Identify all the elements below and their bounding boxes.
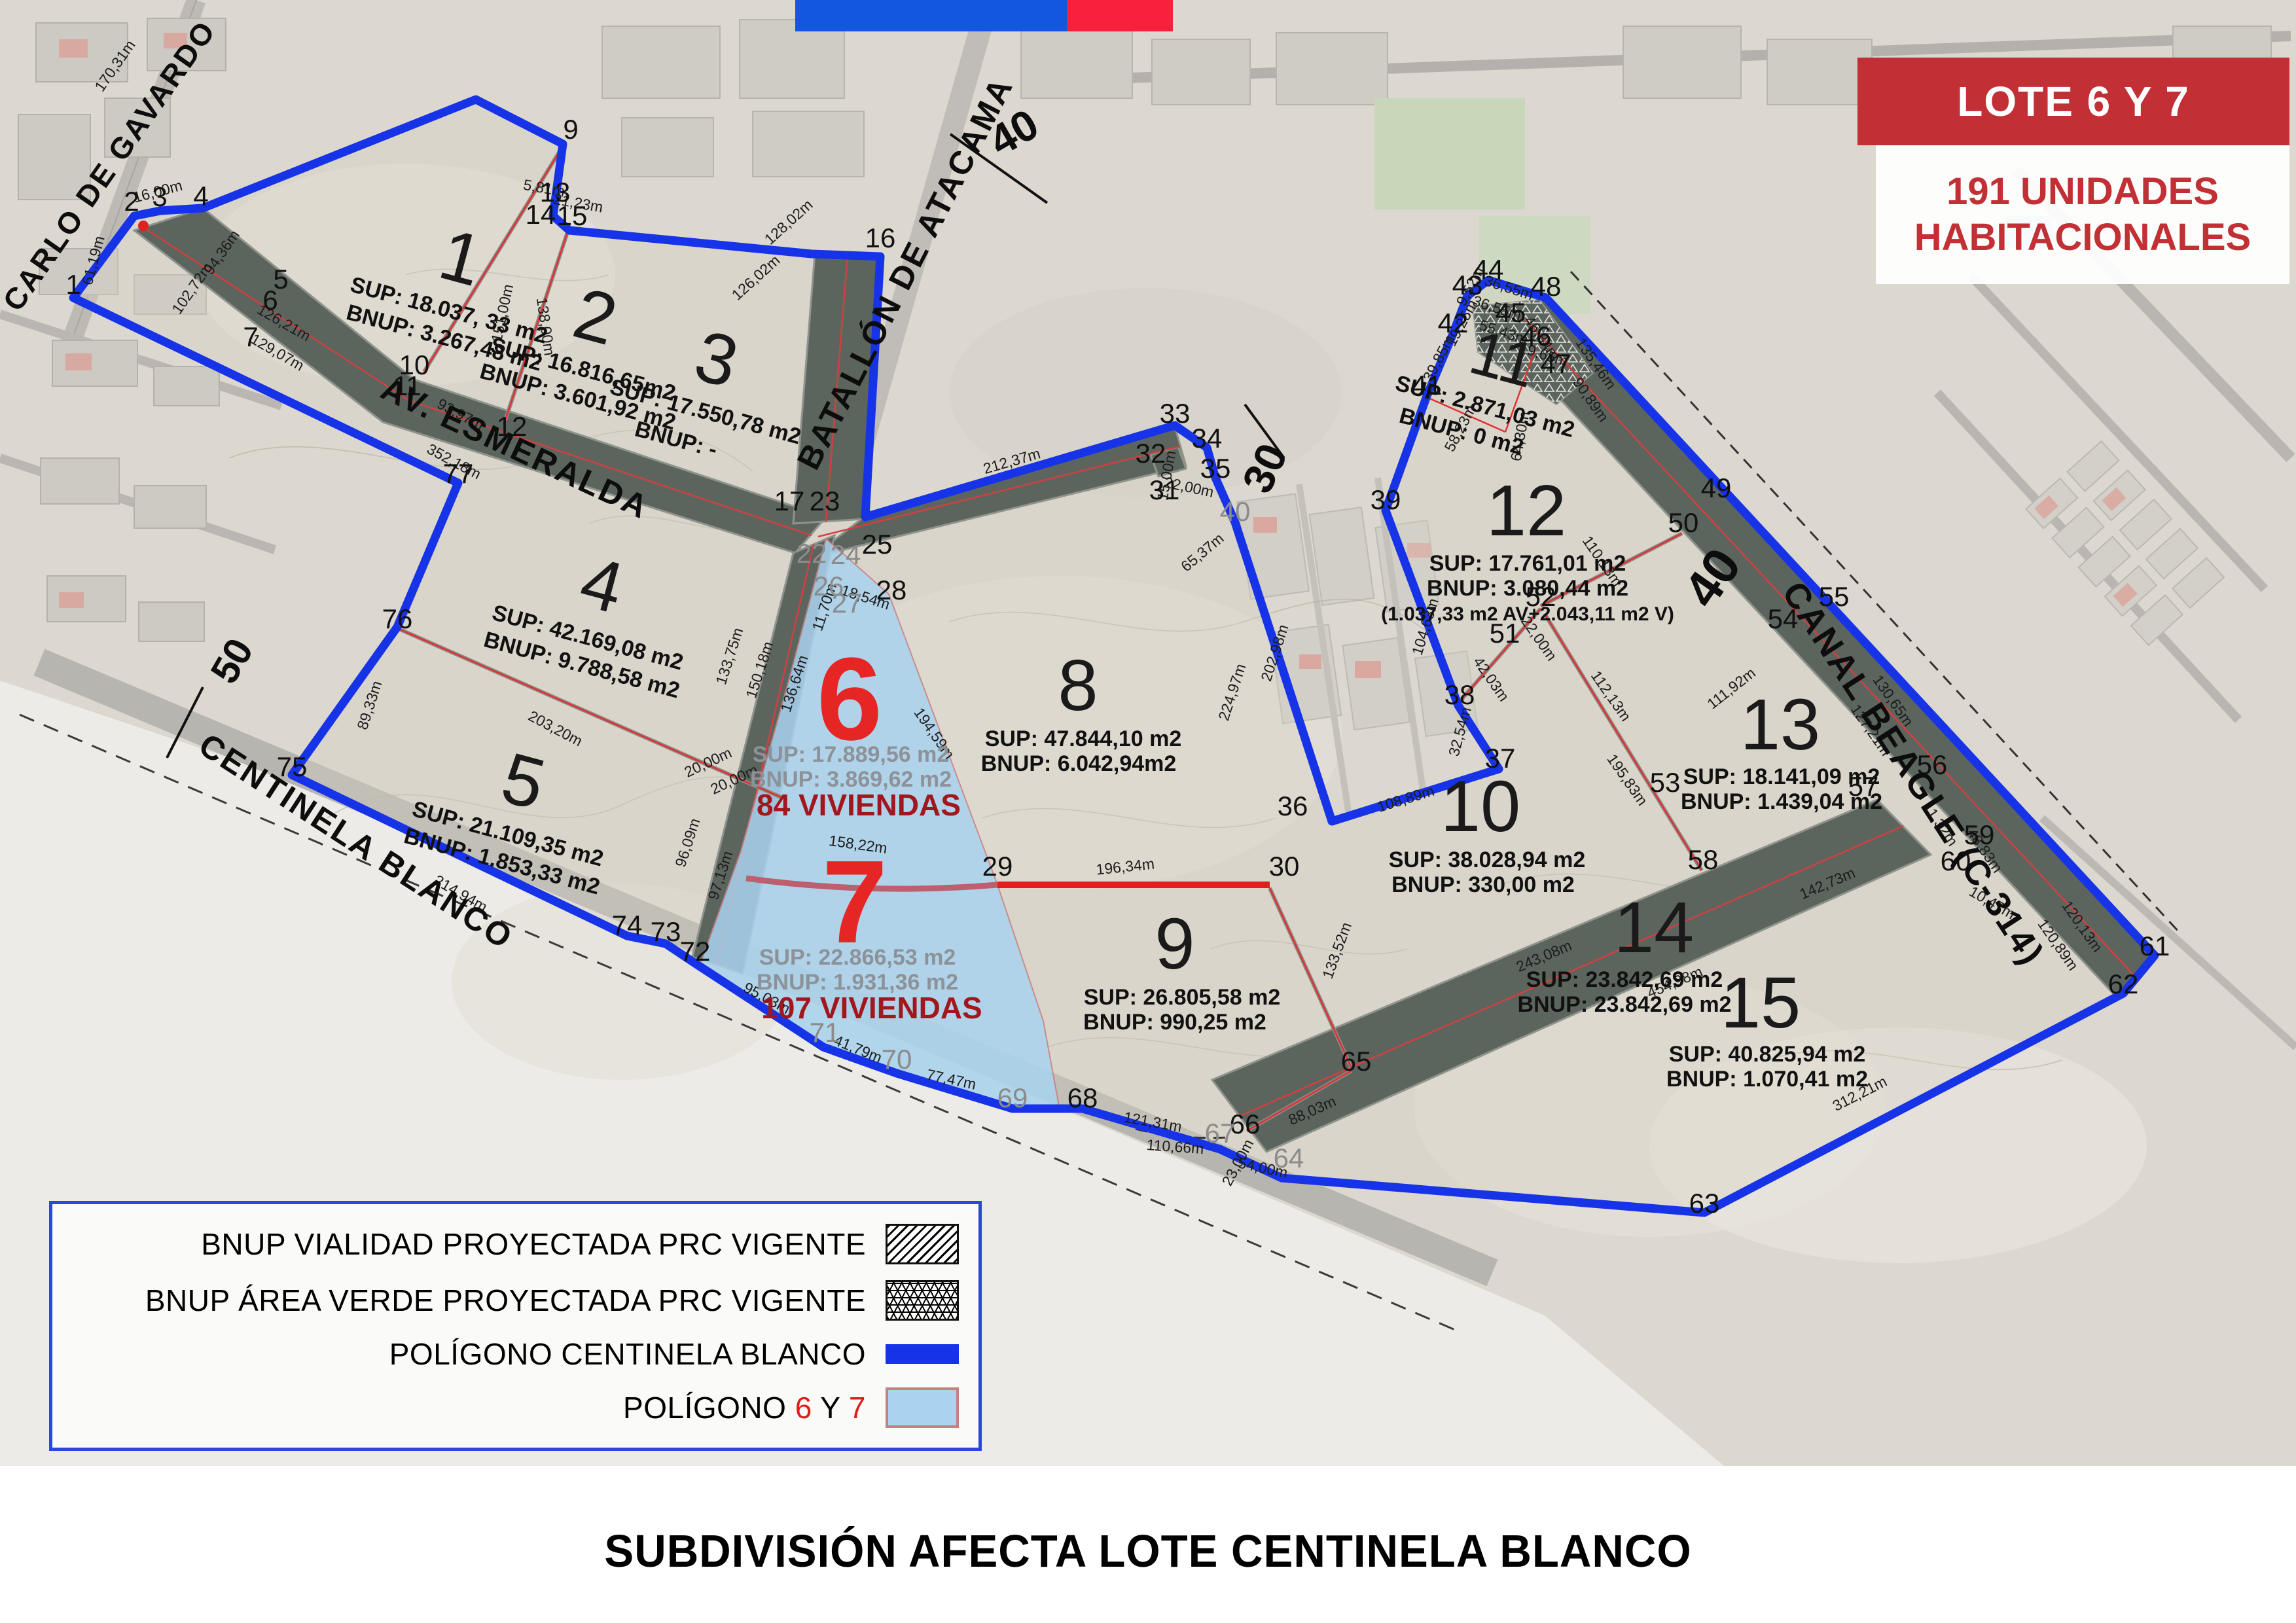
vertex-number: 65 bbox=[1341, 1046, 1372, 1077]
lot-number: 12 bbox=[1486, 471, 1566, 551]
legend-row-vialidad: BNUP VIALIDAD PROYECTADA PRC VIGENTE bbox=[59, 1224, 959, 1264]
vertex-number: 22 bbox=[797, 538, 827, 569]
legend-label-area-verde: BNUP ÁREA VERDE PROYECTADA PRC VIGENTE bbox=[145, 1283, 866, 1318]
lot-viviendas-label: 84 VIVIENDAS bbox=[757, 788, 961, 822]
info-line2: HABITACIONALES bbox=[1914, 215, 2251, 260]
vertex-number: 48 bbox=[1531, 271, 1562, 302]
vertex-number: 74 bbox=[612, 910, 643, 940]
legend-label-part: POLÍGONO bbox=[623, 1391, 795, 1425]
vertex-number: 9 bbox=[563, 114, 578, 145]
lot-area-text: BNUP: 990,25 m2 bbox=[1083, 1010, 1266, 1035]
vertex-number: 64 bbox=[1274, 1143, 1304, 1173]
vertex-number: 23 bbox=[810, 486, 840, 516]
vertex-number: 47 bbox=[1541, 348, 1571, 379]
lot-viviendas-label: 107 VIVIENDAS bbox=[761, 991, 982, 1025]
vertex-number: 73 bbox=[651, 916, 681, 947]
vertex-number: 36 bbox=[1278, 791, 1308, 821]
lot-area-text: BNUP: 3.080,44 m2 bbox=[1427, 576, 1628, 601]
vertex-number: 24 bbox=[831, 539, 861, 570]
lot-number: 9 bbox=[1155, 904, 1194, 984]
vertex-number: 3 bbox=[152, 181, 167, 212]
legend-row-poligono-67: POLÍGONO 6 Y 7 bbox=[59, 1387, 959, 1428]
lot-area-text: SUP: 47.844,10 m2 bbox=[985, 726, 1182, 751]
flag-bar-red bbox=[1067, 0, 1173, 31]
red-vertex-dot bbox=[138, 221, 149, 231]
lot-number: 10 bbox=[1441, 766, 1520, 847]
vertex-number: 61 bbox=[2140, 931, 2170, 961]
lot-number: 13 bbox=[1740, 685, 1820, 765]
legend-swatch-area-verde-hatch bbox=[886, 1280, 959, 1321]
legend-row-poligono-cb: POLÍGONO CENTINELA BLANCO bbox=[59, 1336, 959, 1372]
vertex-number: 27 bbox=[832, 588, 863, 618]
lot-area-text: BNUP: 330,00 m2 bbox=[1391, 872, 1575, 897]
lot-area-text: BNUP: 23.842,69 m2 bbox=[1518, 992, 1732, 1017]
vertex-number: 32 bbox=[1136, 438, 1166, 469]
legend-label-poligono-cb: POLÍGONO CENTINELA BLANCO bbox=[389, 1336, 866, 1372]
lot-area-text: SUP: 38.028,94 m2 bbox=[1389, 847, 1586, 872]
legend-label-part: Y bbox=[812, 1391, 849, 1425]
vertex-number: 29 bbox=[982, 851, 1013, 882]
lot-area-text: SUP: 26.805,58 m2 bbox=[1084, 985, 1281, 1010]
info-subtitle-box: 191 UNIDADES HABITACIONALES bbox=[1876, 145, 2289, 284]
vertex-number: 68 bbox=[1067, 1082, 1098, 1113]
vertex-number: 7 bbox=[243, 321, 258, 352]
page-title: SUBDIVISIÓN AFECTA LOTE CENTINELA BLANCO bbox=[46, 1525, 2250, 1577]
lot-area-text: BNUP: 6.042,94m2 bbox=[981, 751, 1177, 776]
vertex-number: 16 bbox=[865, 223, 896, 253]
info-banner: LOTE 6 Y 7 bbox=[1857, 58, 2289, 145]
vertex-number: 62 bbox=[2108, 969, 2139, 999]
lot-number: 15 bbox=[1721, 963, 1801, 1043]
vertex-number: 58 bbox=[1688, 844, 1719, 875]
vertex-number: 25 bbox=[862, 529, 893, 560]
vertex-number: 63 bbox=[1689, 1188, 1720, 1219]
flag-bar-blue bbox=[795, 0, 1067, 31]
vertex-number: 15 bbox=[557, 200, 588, 231]
lot-area-text: SUP: 18.141,09 m2 bbox=[1683, 764, 1880, 789]
lot-number: 8 bbox=[1058, 645, 1098, 726]
vertex-number: 1 bbox=[65, 269, 81, 300]
lot-area-text: SUP: 23.842,69 m2 bbox=[1526, 967, 1723, 992]
lot-area-text: (1.037,33 m2 AV+2.043,11 m2 V) bbox=[1381, 603, 1674, 625]
legend-label-part: 6 bbox=[795, 1391, 812, 1425]
vertex-number: 38 bbox=[1444, 679, 1475, 710]
legend-swatch-lightblue-fill bbox=[886, 1387, 959, 1428]
vertex-number: 33 bbox=[1160, 398, 1191, 429]
info-title: LOTE 6 Y 7 bbox=[1957, 77, 2190, 126]
vertex-number: 14 bbox=[526, 199, 556, 230]
legend-label-part: 7 bbox=[849, 1391, 866, 1425]
vertex-number: 6 bbox=[262, 285, 278, 315]
legend-swatch-blue-line bbox=[886, 1344, 959, 1364]
vertex-number: 17 bbox=[774, 486, 805, 516]
legend-box: BNUP VIALIDAD PROYECTADA PRC VIGENTE BNU… bbox=[49, 1201, 982, 1451]
vertex-number: 30 bbox=[1269, 851, 1300, 882]
vertex-number: 50 bbox=[1668, 507, 1699, 538]
vertex-number: 4 bbox=[193, 181, 208, 211]
vertex-number: 2 bbox=[124, 186, 139, 217]
vertex-number: 35 bbox=[1200, 453, 1231, 484]
vertex-number: 44 bbox=[1473, 254, 1504, 285]
vertex-number: 67 bbox=[1205, 1118, 1236, 1149]
lot-area-text: SUP: 22.866,53 m2 bbox=[759, 945, 956, 970]
vertex-number: 70 bbox=[882, 1044, 912, 1075]
vertex-number: 72 bbox=[680, 936, 711, 967]
lot-area-text: SUP: 40.825,94 m2 bbox=[1669, 1042, 1866, 1067]
vertex-number: 28 bbox=[876, 575, 907, 605]
lot-area-text: BNUP: 1.439,04 m2 bbox=[1681, 789, 1882, 814]
vertex-number: 49 bbox=[1701, 473, 1732, 503]
vertex-number: 39 bbox=[1371, 484, 1401, 515]
lot-area-text: BNUP: 1.070,41 m2 bbox=[1666, 1067, 1868, 1092]
legend-label-vialidad: BNUP VIALIDAD PROYECTADA PRC VIGENTE bbox=[201, 1226, 866, 1262]
legend-swatch-vialidad-hatch bbox=[886, 1224, 959, 1264]
lot-number: 14 bbox=[1614, 887, 1694, 968]
vertex-number: 34 bbox=[1192, 423, 1223, 454]
vertex-number: 77 bbox=[443, 458, 474, 489]
legend-label-poligono-67: POLÍGONO 6 Y 7 bbox=[623, 1390, 866, 1425]
lot-area-text: SUP: 17.889,56 m2 bbox=[753, 742, 950, 767]
vertex-number: 53 bbox=[1650, 767, 1681, 798]
vertex-number: 31 bbox=[1149, 474, 1180, 505]
vertex-number: 40 bbox=[1220, 496, 1251, 527]
legend-row-area-verde: BNUP ÁREA VERDE PROYECTADA PRC VIGENTE bbox=[59, 1280, 959, 1321]
vertex-number: 42 bbox=[1438, 308, 1469, 338]
info-line1: 191 UNIDADES bbox=[1946, 169, 2219, 215]
vertex-number: 76 bbox=[382, 603, 413, 634]
lot-area-text: SUP: 17.761,01 m2 bbox=[1429, 551, 1626, 576]
vertex-number: 69 bbox=[997, 1082, 1028, 1113]
